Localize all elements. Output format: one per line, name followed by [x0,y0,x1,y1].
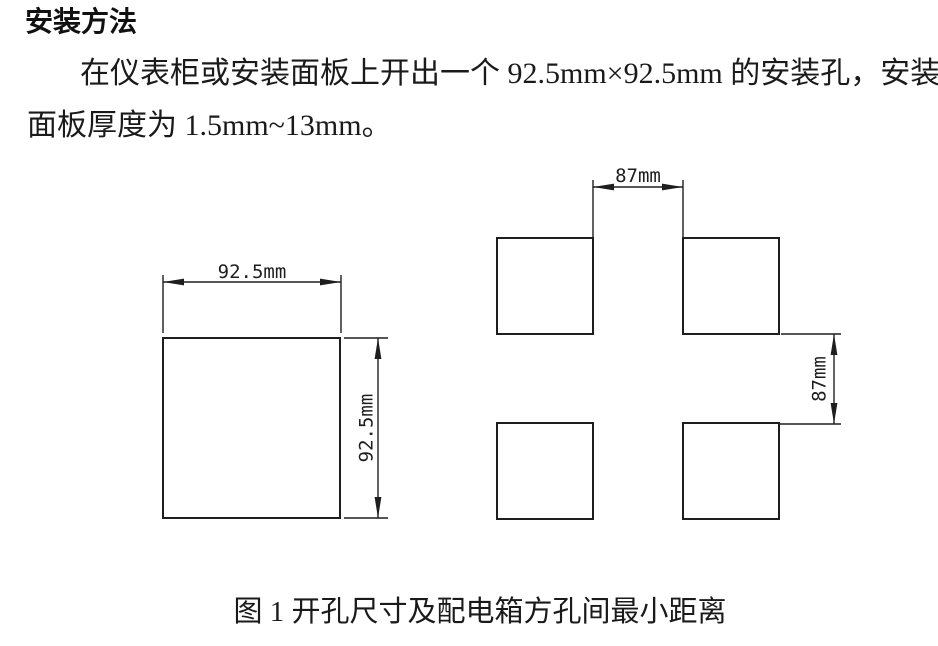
manual-page: 安装方法 在仪表柜或安装面板上开出一个 92.5mm×92.5mm 的安装孔，安… [0,0,938,646]
cutout-square [163,338,340,518]
hole-square-top-right [683,238,779,334]
arrow-left-icon [593,184,614,191]
arrow-right-icon [320,279,341,286]
arrow-up-icon [831,334,838,355]
dimension-label-h-gap: 87mm [615,165,661,187]
paragraph-line-2: 面板厚度为 1.5mm~13mm。 [27,100,392,144]
dimension-label-width: 92.5mm [218,261,287,283]
arrow-down-icon [831,403,838,424]
horizontal-gap-dimension: 87mm [593,165,683,238]
arrow-down-icon [375,497,382,518]
height-dimension: 92.5mm [344,338,388,518]
arrow-up-icon [375,338,382,359]
vertical-gap-dimension: 87mm [779,334,841,424]
arrow-left-icon [163,279,184,286]
hole-square-bottom-left [497,423,593,519]
hole-square-top-left [497,238,593,334]
dimension-label-height: 92.5mm [356,394,378,463]
arrow-right-icon [662,184,683,191]
figure-diagram: 92.5mm 92.5mm [0,160,938,560]
four-holes-drawing: 87mm 87mm [497,165,841,519]
paragraph-line-1: 在仪表柜或安装面板上开出一个 92.5mm×92.5mm 的安装孔，安装 [80,48,929,92]
section-title: 安装方法 [25,0,137,40]
hole-square-bottom-right [683,423,779,519]
single-cutout-drawing: 92.5mm 92.5mm [163,261,388,518]
dimension-label-v-gap: 87mm [809,356,831,402]
figure-caption: 图 1 开孔尺寸及配电箱方孔间最小距离 [11,588,938,630]
width-dimension: 92.5mm [163,261,341,333]
